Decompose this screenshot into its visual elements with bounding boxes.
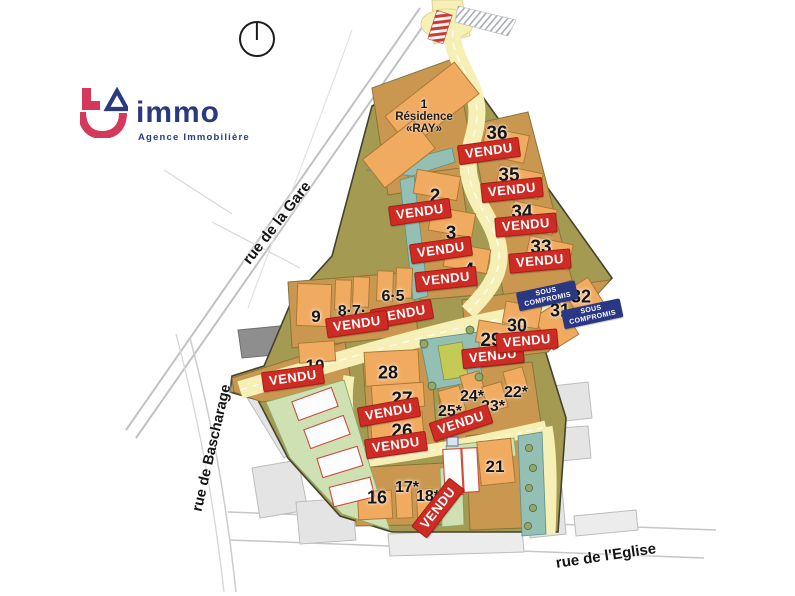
lot-22-number: 22* bbox=[504, 384, 528, 402]
lot-30-sold-badge: VENDU bbox=[495, 328, 559, 353]
site-plan-canvas: immo Agence Immobilière rue de la Gare r… bbox=[0, 0, 795, 596]
lot-labels-layer: 1Résidence«RAY»2VENDU3VENDU4VENDU6·5VEND… bbox=[0, 0, 795, 596]
lot-4-sold-badge: VENDU bbox=[414, 266, 478, 292]
lot-34-sold-badge: VENDU bbox=[494, 212, 558, 237]
lot-10-sold-badge: VENDU bbox=[261, 364, 325, 392]
lot-7-8-sold-badge: VENDU bbox=[325, 310, 389, 338]
lot-28-number: 28 bbox=[378, 363, 398, 384]
lot-9-number: 9 bbox=[311, 307, 320, 327]
lot-35-sold-badge: VENDU bbox=[480, 177, 544, 203]
lot-36-sold-badge: VENDU bbox=[457, 137, 521, 165]
lot-21-number: 21 bbox=[486, 457, 505, 477]
lot-16-number: 16 bbox=[367, 488, 387, 509]
lot-33-sold-badge: VENDU bbox=[508, 248, 572, 273]
lot-2-sold-badge: VENDU bbox=[388, 198, 452, 226]
lot-1-number: 1 bbox=[421, 97, 428, 111]
residence-name-line1: Résidence bbox=[395, 111, 453, 123]
lot-18-sold-badge: VENDU bbox=[411, 477, 465, 538]
lot-26-sold-badge: VENDU bbox=[364, 431, 428, 459]
residence-name-line2: «RAY» bbox=[406, 123, 442, 135]
lot-24-number: 24* bbox=[460, 388, 484, 406]
